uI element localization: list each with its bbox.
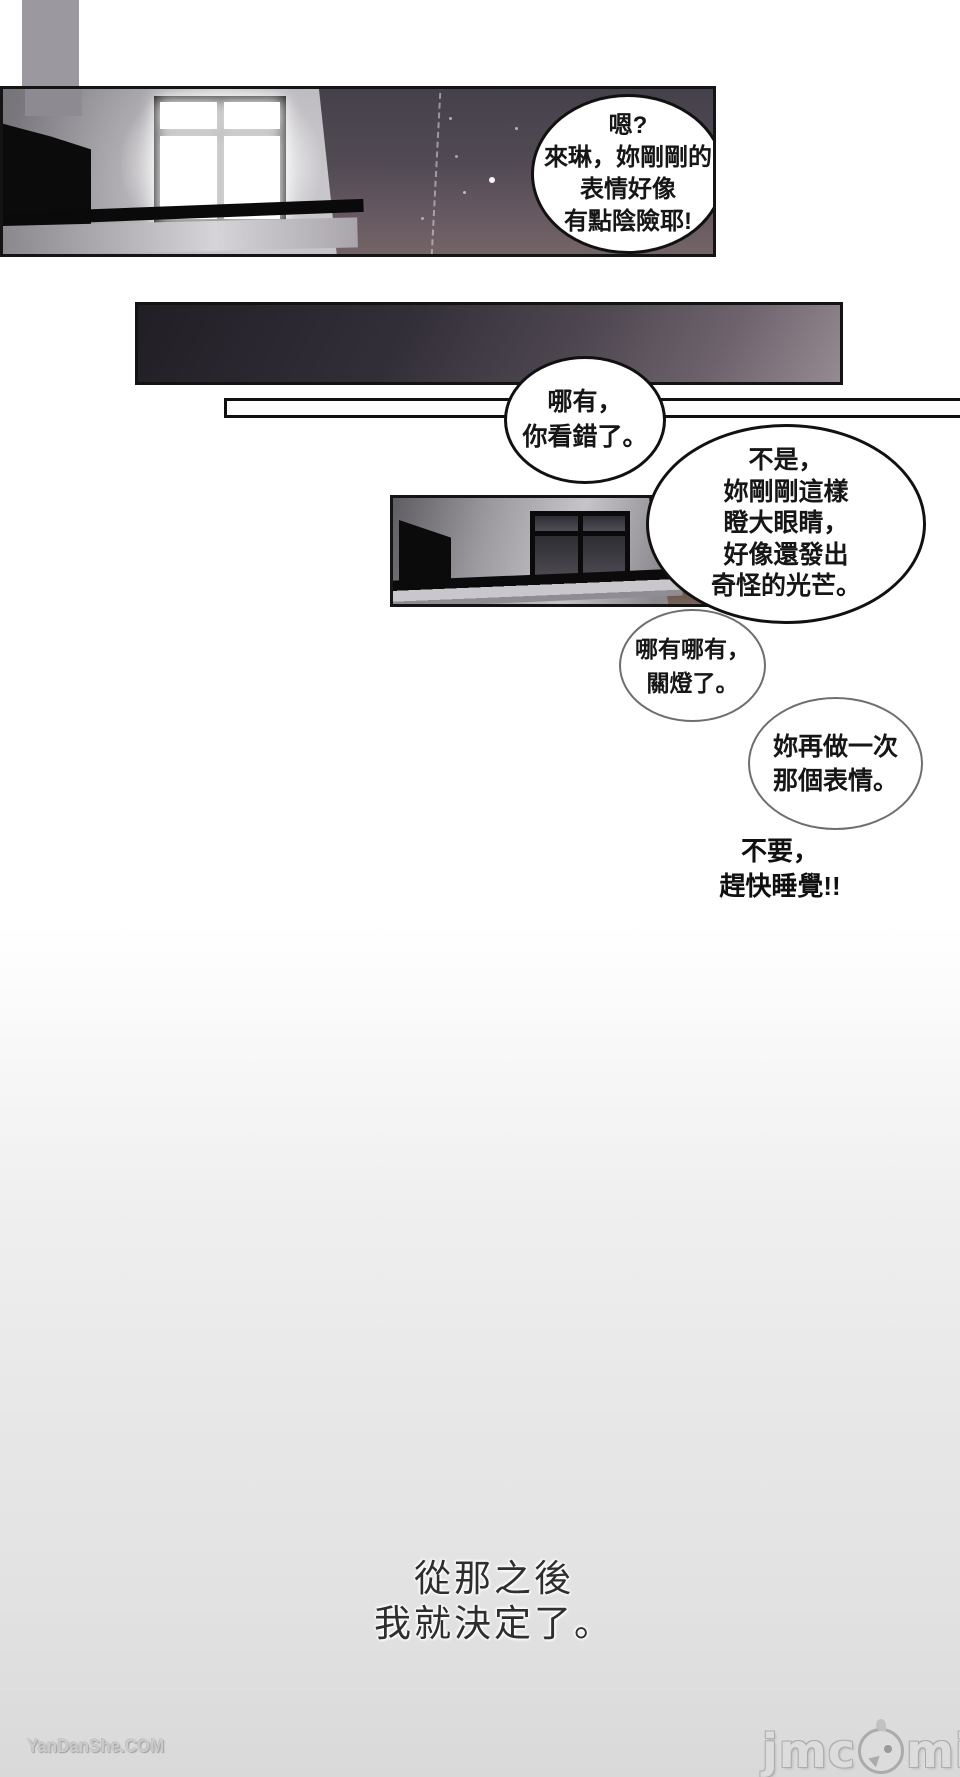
speech-line: 哪有哪有， — [635, 632, 750, 666]
star — [515, 127, 518, 130]
speech-bubble: 妳再做一次 那個表情。 — [748, 697, 923, 830]
shout-line: 趕快睡覺!! — [670, 869, 890, 904]
window-pane — [224, 102, 281, 129]
speech-line: 有點陰險耶! — [564, 206, 692, 238]
speech-line: 來琳，妳剛剛的 — [544, 142, 712, 174]
comic-page: 嗯? 來琳，妳剛剛的 表情好像 有點陰險耶! 哪有， 你看錯了。 不是， 妳剛剛… — [0, 0, 960, 1777]
speech-bubble: 哪有， 你看錯了。 — [504, 356, 666, 484]
star — [421, 217, 424, 220]
panel-dark-room — [135, 302, 843, 385]
shout-line: 不要， — [670, 834, 890, 869]
shout-text: 不要， 趕快睡覺!! — [670, 834, 890, 904]
window-pane — [535, 516, 578, 531]
jmcomic-bird-icon — [858, 1728, 904, 1774]
star — [455, 155, 458, 158]
speech-line: 妳剛剛這樣 — [723, 477, 848, 509]
logo-text-suffix: mic — [906, 1724, 960, 1777]
jmcomic-logo: jmc mic — [762, 1724, 960, 1777]
site-watermark: YanDanShe.COM — [27, 1736, 164, 1757]
chimney-base — [25, 89, 82, 116]
speech-line: 那個表情。 — [773, 764, 898, 798]
logo-text-prefix: jmc — [762, 1724, 856, 1777]
narration-caption: 從那之後 我就決定了。 — [334, 1556, 654, 1646]
speech-bubble: 嗯? 來琳，妳剛剛的 表情好像 有點陰險耶! — [531, 94, 716, 254]
speech-bubble: 哪有哪有， 關燈了。 — [619, 609, 766, 722]
star — [463, 191, 466, 194]
speech-line: 好像還發出 — [723, 540, 848, 572]
speech-line: 哪有， — [547, 385, 622, 420]
caption-line: 我就決定了。 — [334, 1601, 654, 1646]
speech-line: 你看錯了。 — [522, 420, 647, 455]
speech-line: 關燈了。 — [647, 666, 739, 700]
window-pane — [160, 102, 217, 129]
panel-night-house: 嗯? 來琳，妳剛剛的 表情好像 有點陰險耶! — [0, 86, 716, 257]
speech-bubble: 不是， 妳剛剛這樣 瞪大眼睛， 好像還發出 奇怪的光芒。 — [646, 424, 926, 624]
speech-line: 嗯? — [609, 110, 648, 142]
window-pane — [583, 516, 626, 531]
speech-line: 不是， — [748, 445, 823, 477]
star — [449, 117, 452, 120]
speech-line: 妳再做一次 — [773, 730, 898, 764]
caption-line: 從那之後 — [334, 1556, 654, 1601]
speech-line: 奇怪的光芒。 — [711, 571, 861, 603]
chimney — [22, 0, 79, 89]
star — [489, 177, 495, 183]
speech-line: 表情好像 — [580, 174, 676, 206]
speech-line: 瞪大眼睛， — [723, 508, 848, 540]
